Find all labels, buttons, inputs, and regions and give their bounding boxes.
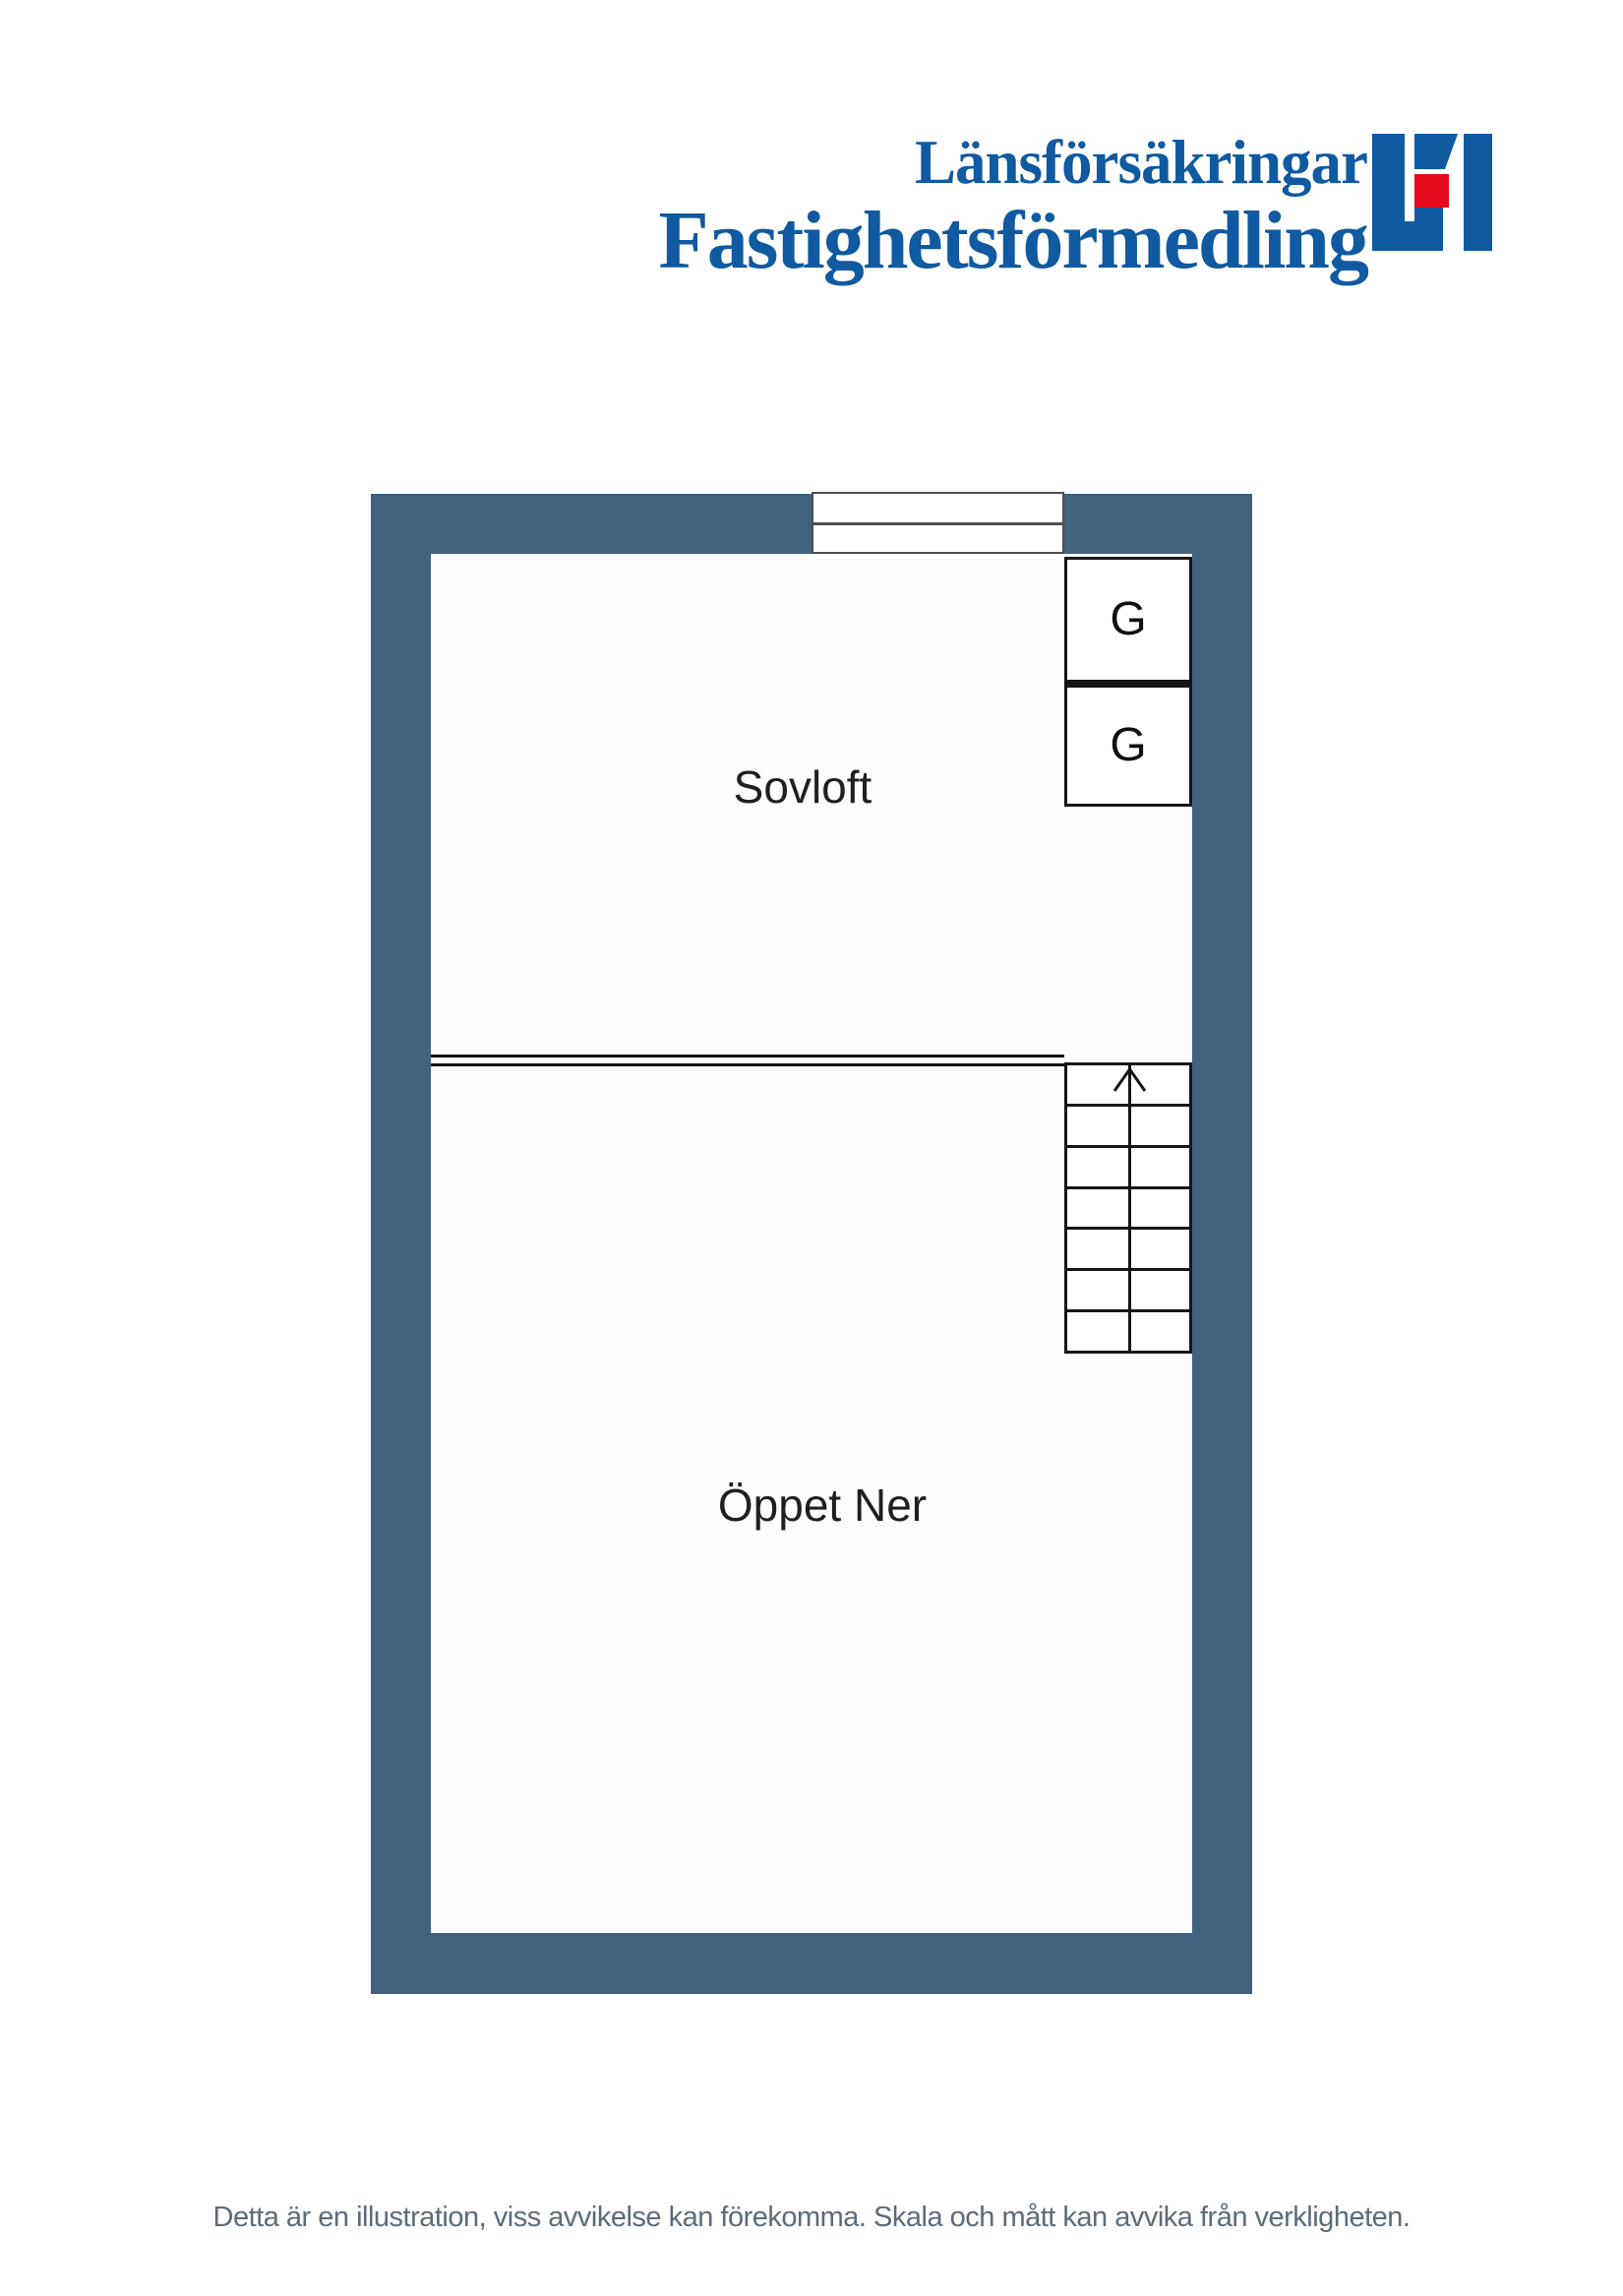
- wardrobe-label: G: [1110, 596, 1146, 643]
- staircase: [1064, 1062, 1192, 1354]
- window-symbol: [811, 492, 1064, 554]
- room-label-sovloft: Sovloft: [734, 760, 872, 814]
- wardrobe-group: G G: [1064, 557, 1192, 807]
- brand-name-line2: Fastighetsförmedling: [658, 200, 1367, 282]
- wardrobe-label: G: [1110, 722, 1146, 769]
- room-label-oppet-ner: Öppet Ner: [718, 1479, 927, 1532]
- wardrobe-box: G: [1064, 683, 1192, 807]
- lansforsakringar-logo-icon: [1372, 134, 1492, 251]
- loft-edge-line-upper: [431, 1055, 1064, 1057]
- brand-wordmark: Länsförsäkringar Fastighetsförmedling: [658, 132, 1367, 282]
- page: { "logo": { "line1": "Länsförsäkringar",…: [0, 0, 1623, 2296]
- floor-plan: G G Sovloft Öppet Ner: [371, 494, 1252, 1994]
- wardrobe-box: G: [1064, 557, 1192, 683]
- window-pane-divider: [813, 522, 1062, 525]
- stairs-up-arrow-icon: [1067, 1065, 1195, 1109]
- brand-name-line1: Länsförsäkringar: [915, 132, 1367, 194]
- loft-edge-line-lower: [431, 1063, 1064, 1066]
- disclaimer-text: Detta är en illustration, viss avvikelse…: [0, 2202, 1623, 2234]
